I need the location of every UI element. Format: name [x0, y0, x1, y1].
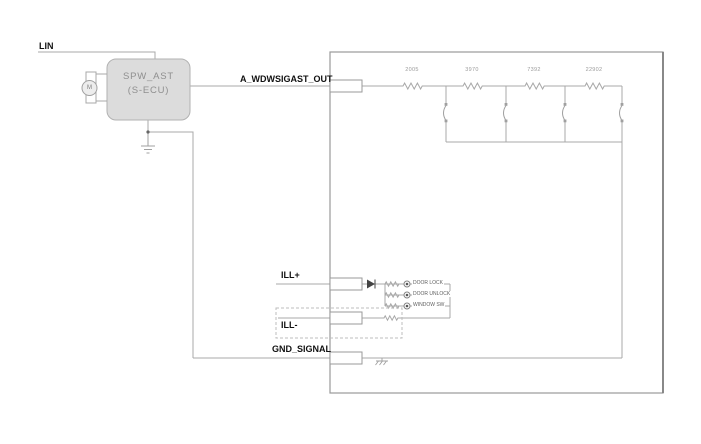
ill-plus-label: ILL+	[281, 270, 300, 280]
connector-pins	[330, 80, 362, 364]
resistor-ladder-icon	[362, 83, 622, 89]
switch-icons	[444, 103, 624, 122]
ladder-rail-wire	[446, 142, 622, 358]
motor-label: M	[84, 85, 95, 91]
led-label: DOOR UNLOCK	[412, 291, 451, 297]
resistor-value: 2005	[392, 67, 432, 73]
resistor-value: 7392	[514, 67, 554, 73]
out-label: A_WDWSIGAST_OUT	[240, 74, 327, 84]
led-dot	[406, 283, 409, 286]
resistor-value: 22902	[574, 67, 614, 73]
ecu-type: (S-ECU)	[107, 85, 190, 96]
ill-plus-connector	[330, 278, 362, 290]
out-connector	[330, 80, 362, 92]
ill-minus-label: ILL-	[281, 320, 298, 330]
led-resistor-icon	[385, 293, 399, 297]
main-harness-box	[330, 52, 663, 393]
led-label: WINDOW SW	[412, 302, 445, 308]
lin-wire	[38, 52, 155, 59]
chassis-ground-icon	[376, 358, 389, 365]
switch-icon	[444, 106, 447, 121]
ecu-name: SPW_AST	[107, 71, 190, 82]
switch-icon	[504, 106, 507, 121]
led-icons	[404, 281, 410, 309]
diode-icon	[367, 280, 375, 289]
lin-label: LIN	[39, 41, 54, 51]
ill-minus-wire	[278, 316, 450, 320]
ill-minus-connector	[330, 312, 362, 324]
switch-icon	[620, 106, 623, 121]
wiring-diagram: LIN A_WDWSIGAST_OUT ILL+ ILL- GND_SIGNAL…	[0, 0, 701, 444]
resistor-value: 3970	[452, 67, 492, 73]
motor-wires	[96, 74, 107, 101]
ground-icon	[141, 132, 155, 153]
led-dot	[406, 305, 409, 308]
junction-dot	[146, 130, 149, 133]
gnd-connector	[330, 352, 362, 364]
gnd-signal-label: GND_SIGNAL	[272, 344, 327, 354]
switch-icon	[563, 106, 566, 121]
led-label: DOOR LOCK	[412, 280, 444, 286]
led-dot	[406, 294, 409, 297]
led-resistor-icon	[385, 282, 399, 286]
ecu-ground-wire	[148, 120, 193, 358]
